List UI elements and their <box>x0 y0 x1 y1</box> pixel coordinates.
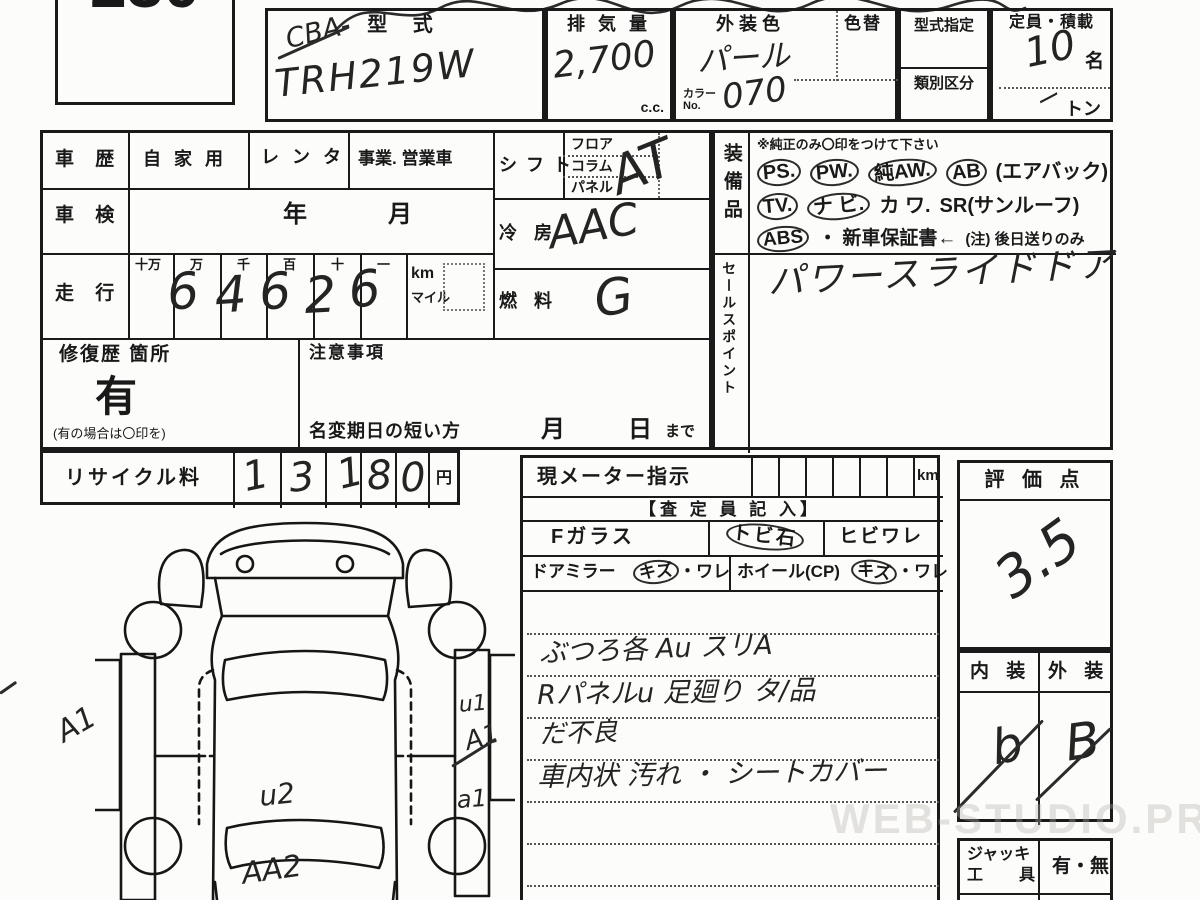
grid-line <box>886 458 888 496</box>
mileage-unit-km: km <box>411 265 434 283</box>
grid-line <box>43 338 715 340</box>
aircon-value-handwritten: AAC <box>545 197 642 256</box>
equipment-note: ※純正のみ〇印をつけて下さい <box>757 138 939 153</box>
repair-note: (有の場合は〇印を) <box>53 427 166 442</box>
wheel-label: ホイール(CP) <box>737 562 840 582</box>
stone-chip-option-circled: トビ石 <box>725 520 805 554</box>
exterior-color-box: 外装色 色替 パール カラー No. 070 <box>673 8 898 122</box>
auction-sheet-scan: 230 型 式 CBA- TRH219W 排 気 量 2,700 c.c. 外装… <box>0 0 1200 900</box>
grid-line <box>823 520 825 555</box>
evaluation-label: 評 価 点 <box>960 469 1110 492</box>
class-division-label: 類別区分 <box>901 75 987 92</box>
color-no-value-handwritten: 070 <box>720 72 789 115</box>
grid-line <box>128 133 130 338</box>
repair-label: 修復歴 箇所 <box>59 344 171 366</box>
equipment-label: 装備品 <box>720 143 742 227</box>
note-line <box>527 885 939 887</box>
grid-line <box>523 555 943 557</box>
model-value-handwritten: TRH219W <box>273 44 478 103</box>
exterior-label: 外 装 <box>1048 661 1109 683</box>
displacement-unit: c.c. <box>641 99 664 115</box>
jack-label-line2: 工 具 <box>967 867 1045 885</box>
mileage-digit: 2 <box>303 269 337 321</box>
grid-line <box>523 590 943 592</box>
grid-line <box>708 520 710 555</box>
equipment-sales-block: 装備品 ※純正のみ〇印をつけて下さい PS.PW.純AW.AB(エアバック) T… <box>712 130 1113 450</box>
grid-line <box>778 458 780 496</box>
displacement-value-handwritten: 2,700 <box>551 36 658 84</box>
exterior-color-label: 外装色 <box>716 14 785 35</box>
model-code-box: 型 式 CBA- TRH219W <box>265 8 545 122</box>
mileage-digit: 4 <box>213 269 248 321</box>
grid-line <box>859 458 861 496</box>
equipment-item: カ ワ. <box>879 195 930 218</box>
note-line <box>527 843 939 845</box>
crack-option: ヒビワレ <box>839 526 923 548</box>
mileage-place-100k: 十万 <box>135 258 161 273</box>
grid-line <box>348 133 350 188</box>
damage-code-left: A1 <box>52 702 101 748</box>
capacity-persons-unit: 名 <box>1085 51 1104 73</box>
recycle-digit: 1 <box>333 451 367 496</box>
jack-tools-box: ジャッキ 工 具 有・無 <box>957 838 1113 900</box>
shaken-year-label: 年 <box>283 201 307 229</box>
meter-label: 現メーター指示 <box>537 466 691 489</box>
equipment-item: SR(サンルーフ) <box>940 195 1080 218</box>
assessor-note-handwritten: ぶつろ各 Au スリA <box>539 632 773 667</box>
caution-label: 注意事項 <box>309 343 385 363</box>
equipment-item: ナ ビ. <box>806 190 871 222</box>
divider <box>901 67 987 69</box>
equipment-item: ABS <box>756 224 810 254</box>
equipment-item: 純AW. <box>867 156 938 189</box>
damage-code-bottom: AA2 <box>240 852 304 890</box>
capacity-load-unit: トン <box>1065 99 1101 120</box>
grid-line <box>960 893 1110 895</box>
wheel-scratch-circled: キズ <box>850 557 899 587</box>
lot-number: 230 <box>58 0 232 23</box>
history-option-rental: レ ン タ <box>261 147 345 168</box>
evaluation-value-handwritten: 3.5 <box>986 511 1091 609</box>
color-change-label: 色替 <box>844 14 882 34</box>
equipment-item: PS. <box>756 157 802 188</box>
divider <box>794 79 898 81</box>
pen-tick-left-edge <box>0 681 17 695</box>
mile-checkbox <box>443 263 485 311</box>
shift-option-panel: パネル <box>571 179 613 195</box>
history-option-private: 自 家 用 <box>143 149 227 170</box>
shift-label: シ フ ト <box>499 155 573 176</box>
caution-day: 日 <box>628 416 652 444</box>
mileage-label: 走 行 <box>55 283 122 305</box>
equipment-row1: PS.PW.純AW.AB(エアバック) <box>757 159 1117 186</box>
damage-code-center: u2 <box>258 779 296 811</box>
grid-line <box>395 453 397 508</box>
capacity-box: 定員・積載 10 名 ー トン <box>990 8 1113 122</box>
equipment-item: ・ 新車保証書← <box>818 228 956 250</box>
assessor-note-handwritten: Rパネルu 足廻り タ/品 <box>537 677 816 709</box>
displacement-label: 排 気 量 <box>548 14 670 35</box>
mileage-digit: 6 <box>257 265 293 318</box>
sales-point-label: セールスポイント <box>721 261 737 397</box>
assessor-note-handwritten: だ不良 <box>539 719 618 748</box>
evaluation-box: 評 価 点 3.5 <box>957 460 1113 650</box>
displacement-box: 排 気 量 2,700 c.c. <box>545 8 673 122</box>
repair-value: 有 <box>95 373 137 421</box>
model-designation-label: 型式指定 <box>901 17 987 34</box>
grid-line <box>43 188 493 190</box>
equipment-item: AB <box>944 157 987 187</box>
jack-label-line1: ジャッキ <box>967 846 1030 864</box>
grid-line <box>43 253 493 255</box>
color-no-label: カラー No. <box>683 89 717 112</box>
caution-line: 名変期日の短い方 <box>309 421 461 442</box>
grid-line <box>280 453 282 508</box>
jack-value: 有・無 <box>1052 856 1109 878</box>
history-option-business: 事業. 営業車 <box>358 149 452 169</box>
designation-box: 型式指定 類別区分 <box>898 8 990 122</box>
recycle-digit: 8 <box>365 455 394 497</box>
recycle-label: リサイクル料 <box>65 467 202 490</box>
grid-line <box>913 458 915 496</box>
mileage-digit: 6 <box>346 263 383 316</box>
capacity-persons-handwritten: 10 <box>1021 24 1079 74</box>
interior-label: 内 装 <box>970 661 1031 683</box>
recycle-digit: 3 <box>287 456 316 498</box>
equipment-item: (エアバック) <box>995 161 1108 184</box>
equipment-item: TV. <box>756 191 799 221</box>
grid-line <box>523 496 943 498</box>
grid-line <box>960 691 1110 693</box>
shift-value-handwritten: AT <box>603 131 681 203</box>
mileage-place-1: 一 <box>377 258 390 273</box>
mirror-scratch-circled: キズ <box>632 558 680 585</box>
grid-line <box>248 133 250 188</box>
divider <box>836 11 838 81</box>
caution-month: 月 <box>541 416 565 444</box>
assessor-note-handwritten: 車内状 汚れ ・ シートカバー <box>537 758 887 791</box>
meter-unit: km <box>917 467 939 484</box>
grid-line <box>298 338 300 453</box>
recycle-digit: 1 <box>239 454 272 498</box>
grid-line <box>428 453 430 508</box>
shaken-label: 車 検 <box>55 205 122 227</box>
grid-line <box>406 253 408 338</box>
assessor-title: 【査 定 員 記 入】 <box>523 500 937 520</box>
wheel-scratch-rest: ・ワレ <box>897 562 948 581</box>
recycle-fee-row: リサイクル料 1 3 1 8 0 円 <box>40 450 460 505</box>
interior-grade-handwritten: b <box>988 720 1026 773</box>
grid-line <box>751 458 753 496</box>
damage-code-right-low: a1 <box>456 786 488 812</box>
grid-line <box>832 458 834 496</box>
recycle-digit: 0 <box>399 457 427 499</box>
car-top-view-diagram <box>95 512 515 900</box>
equipment-row2: TV.ナ ビ.カ ワ.SR(サンルーフ) <box>757 193 1088 220</box>
history-label: 車 歴 <box>55 149 122 171</box>
recycle-unit: 円 <box>436 470 452 488</box>
main-left-block: 車 歴 自 家 用 レ ン タ 事業. 営業車 車 検 年 月 走 行 十万 万… <box>40 130 712 450</box>
damage-code-right-top: u1 <box>458 693 488 717</box>
grid-line <box>325 453 327 508</box>
grid-line <box>960 499 1110 501</box>
equipment-item: PW. <box>809 157 860 188</box>
lot-number-box: 230 <box>55 0 235 105</box>
mileage-digit: 6 <box>165 265 201 318</box>
door-mirror-label: ドアミラー <box>531 562 616 582</box>
grid-line <box>233 453 235 508</box>
grid-line <box>493 133 495 338</box>
fuel-label: 燃 料 <box>499 291 558 312</box>
shaken-month-label: 月 <box>388 201 412 229</box>
mirror-scratch-rest: ・ワレ <box>679 562 730 581</box>
front-glass-label: Fガラス <box>551 526 635 549</box>
caution-suffix: まで <box>665 423 695 440</box>
fuel-value-handwritten: G <box>591 270 636 325</box>
grid-line <box>805 458 807 496</box>
watermark: WEB-STUDIO.PRO <box>830 795 1200 843</box>
grid-line <box>748 133 750 453</box>
